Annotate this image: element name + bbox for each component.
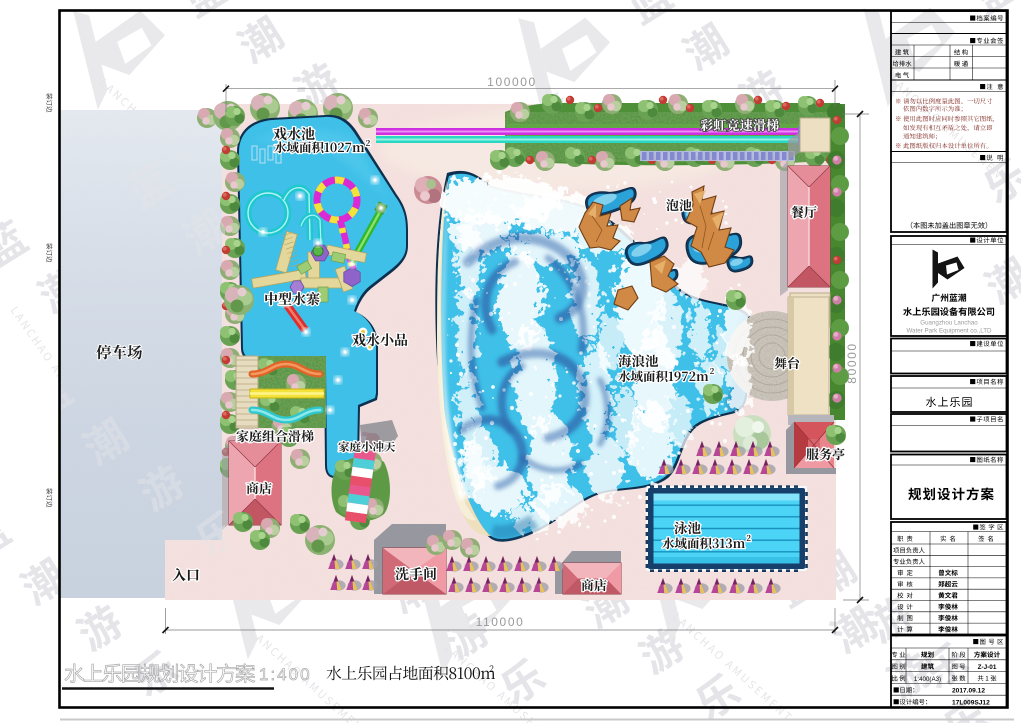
svg-text:1:400: 1:400 [259, 665, 312, 684]
svg-text:80000: 80000 [845, 342, 859, 383]
svg-text:Water Park Equipment co.,LTD: Water Park Equipment co.,LTD [907, 328, 992, 335]
svg-text:17L009SJ12: 17L009SJ12 [952, 699, 990, 706]
svg-text:100000: 100000 [487, 75, 537, 89]
svg-text:110000: 110000 [476, 615, 525, 629]
svg-text:2017.09.12: 2017.09.12 [952, 688, 985, 695]
svg-text:1:400(A3): 1:400(A3) [914, 676, 941, 683]
svg-text:Guangzhou Lanchao: Guangzhou Lanchao [920, 320, 978, 327]
svg-text:Z-J-01: Z-J-01 [978, 664, 997, 671]
